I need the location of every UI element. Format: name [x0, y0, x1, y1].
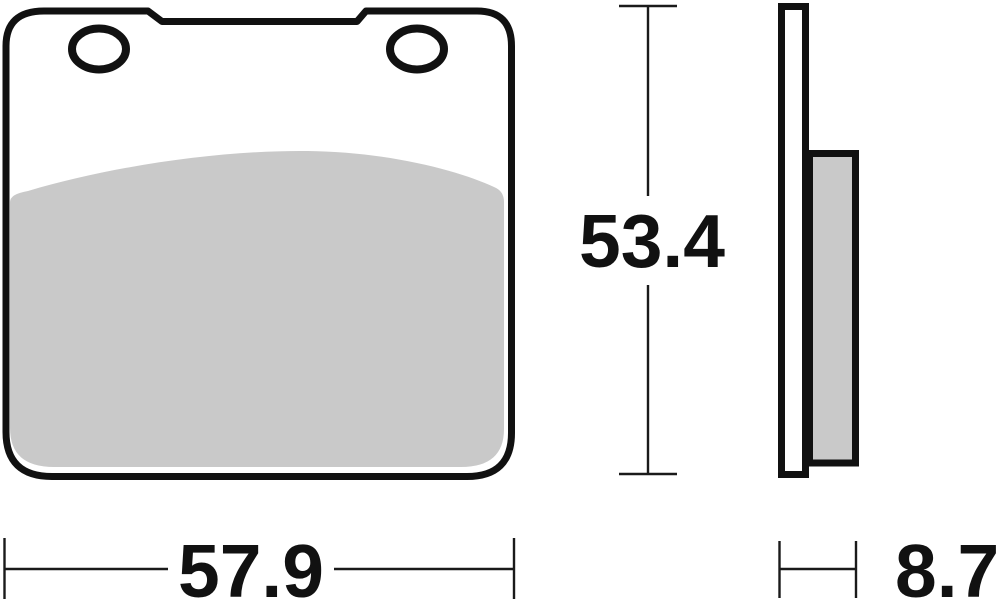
height-dimension: 53.4 — [579, 6, 725, 474]
backplate-side — [782, 7, 806, 475]
mounting-hole-left — [72, 29, 126, 70]
side-view — [782, 7, 856, 475]
friction-material-side — [810, 154, 856, 464]
technical-drawing-page: 53.4 57.9 8.7 — [0, 0, 1000, 601]
height-value: 53.4 — [579, 199, 725, 283]
friction-material-front — [10, 151, 504, 467]
width-dimension: 57.9 — [5, 529, 515, 601]
width-value: 57.9 — [178, 529, 324, 601]
thickness-dimension: 8.7 — [780, 529, 1000, 601]
mounting-hole-right — [390, 29, 444, 70]
front-view — [6, 11, 512, 477]
thickness-value: 8.7 — [895, 529, 999, 601]
brake-pad-technical-drawing: 53.4 57.9 8.7 — [0, 0, 1000, 601]
